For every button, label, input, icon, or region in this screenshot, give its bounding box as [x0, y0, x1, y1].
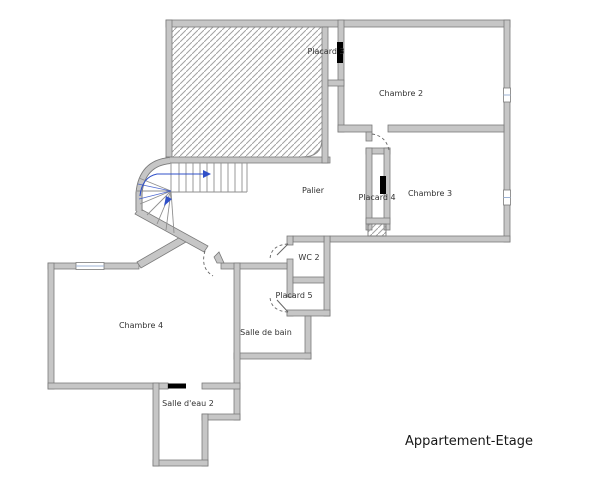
- hatched-void-area: [166, 20, 330, 163]
- wall-placard3-bottom: [328, 80, 344, 86]
- duct-hatched-block: [368, 224, 386, 236]
- wall-right: [504, 20, 510, 242]
- door-leaf-lines: [277, 244, 288, 312]
- window-chambre2: [504, 88, 511, 102]
- wall-void-bottom: [166, 157, 330, 163]
- wall-palier-bottom: [330, 236, 510, 242]
- label-placard-4: Placard 4: [358, 193, 395, 202]
- walkline-arrow-down: [164, 196, 172, 206]
- label-chambre-2: Chambre 2: [379, 89, 423, 98]
- wall-chambre4-left: [48, 263, 54, 389]
- window-chambre4: [76, 263, 104, 270]
- wall-void-left: [166, 20, 172, 157]
- wall-couloir: [221, 263, 287, 269]
- floor-plan-canvas: Placard 3 Chambre 2 Palier Placard 4 Cha…: [0, 0, 600, 480]
- label-salle-eau-2: Salle d'eau 2: [162, 399, 214, 408]
- door-placard4: [380, 176, 386, 194]
- floor-plan-svg: Placard 3 Chambre 2 Palier Placard 4 Cha…: [0, 0, 600, 480]
- window-chambre3: [504, 190, 511, 205]
- wall-door-stub: [366, 132, 372, 141]
- wall-chambre2-left: [338, 20, 344, 132]
- label-salle-de-bain: Salle de bain: [240, 328, 292, 337]
- label-chambre-4: Chambre 4: [119, 321, 163, 330]
- door-salle-eau: [168, 384, 186, 389]
- label-wc-2: WC 2: [298, 253, 319, 262]
- wall-diagonal-chambre4: [137, 236, 186, 268]
- door-arc-chambre4: [204, 251, 213, 276]
- wall-chambre4-right: [234, 263, 240, 420]
- label-palier: Palier: [302, 186, 325, 195]
- plan-title: Appartement-Etage: [405, 434, 533, 449]
- label-placard-3: Placard 3: [307, 47, 344, 56]
- label-chambre-3: Chambre 3: [408, 189, 452, 198]
- label-placard-5: Placard 5: [275, 291, 312, 300]
